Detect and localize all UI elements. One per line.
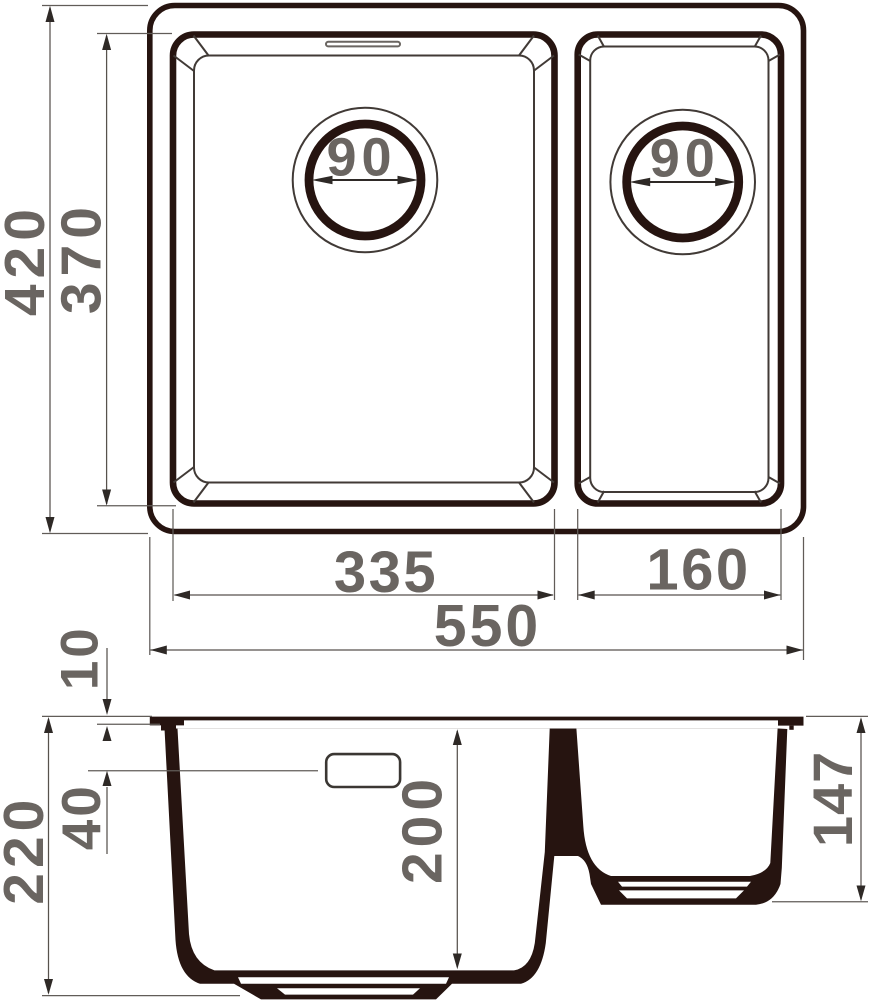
- svg-text:147: 147: [801, 751, 864, 847]
- svg-text:90: 90: [326, 127, 396, 187]
- svg-text:160: 160: [646, 538, 750, 603]
- svg-text:10: 10: [50, 625, 109, 690]
- svg-text:220: 220: [0, 795, 56, 905]
- svg-text:550: 550: [434, 593, 541, 659]
- svg-text:200: 200: [390, 774, 454, 884]
- svg-text:335: 335: [334, 540, 438, 605]
- svg-text:420: 420: [0, 203, 57, 316]
- svg-text:40: 40: [50, 783, 112, 850]
- svg-text:370: 370: [49, 201, 113, 314]
- svg-text:90: 90: [650, 129, 720, 189]
